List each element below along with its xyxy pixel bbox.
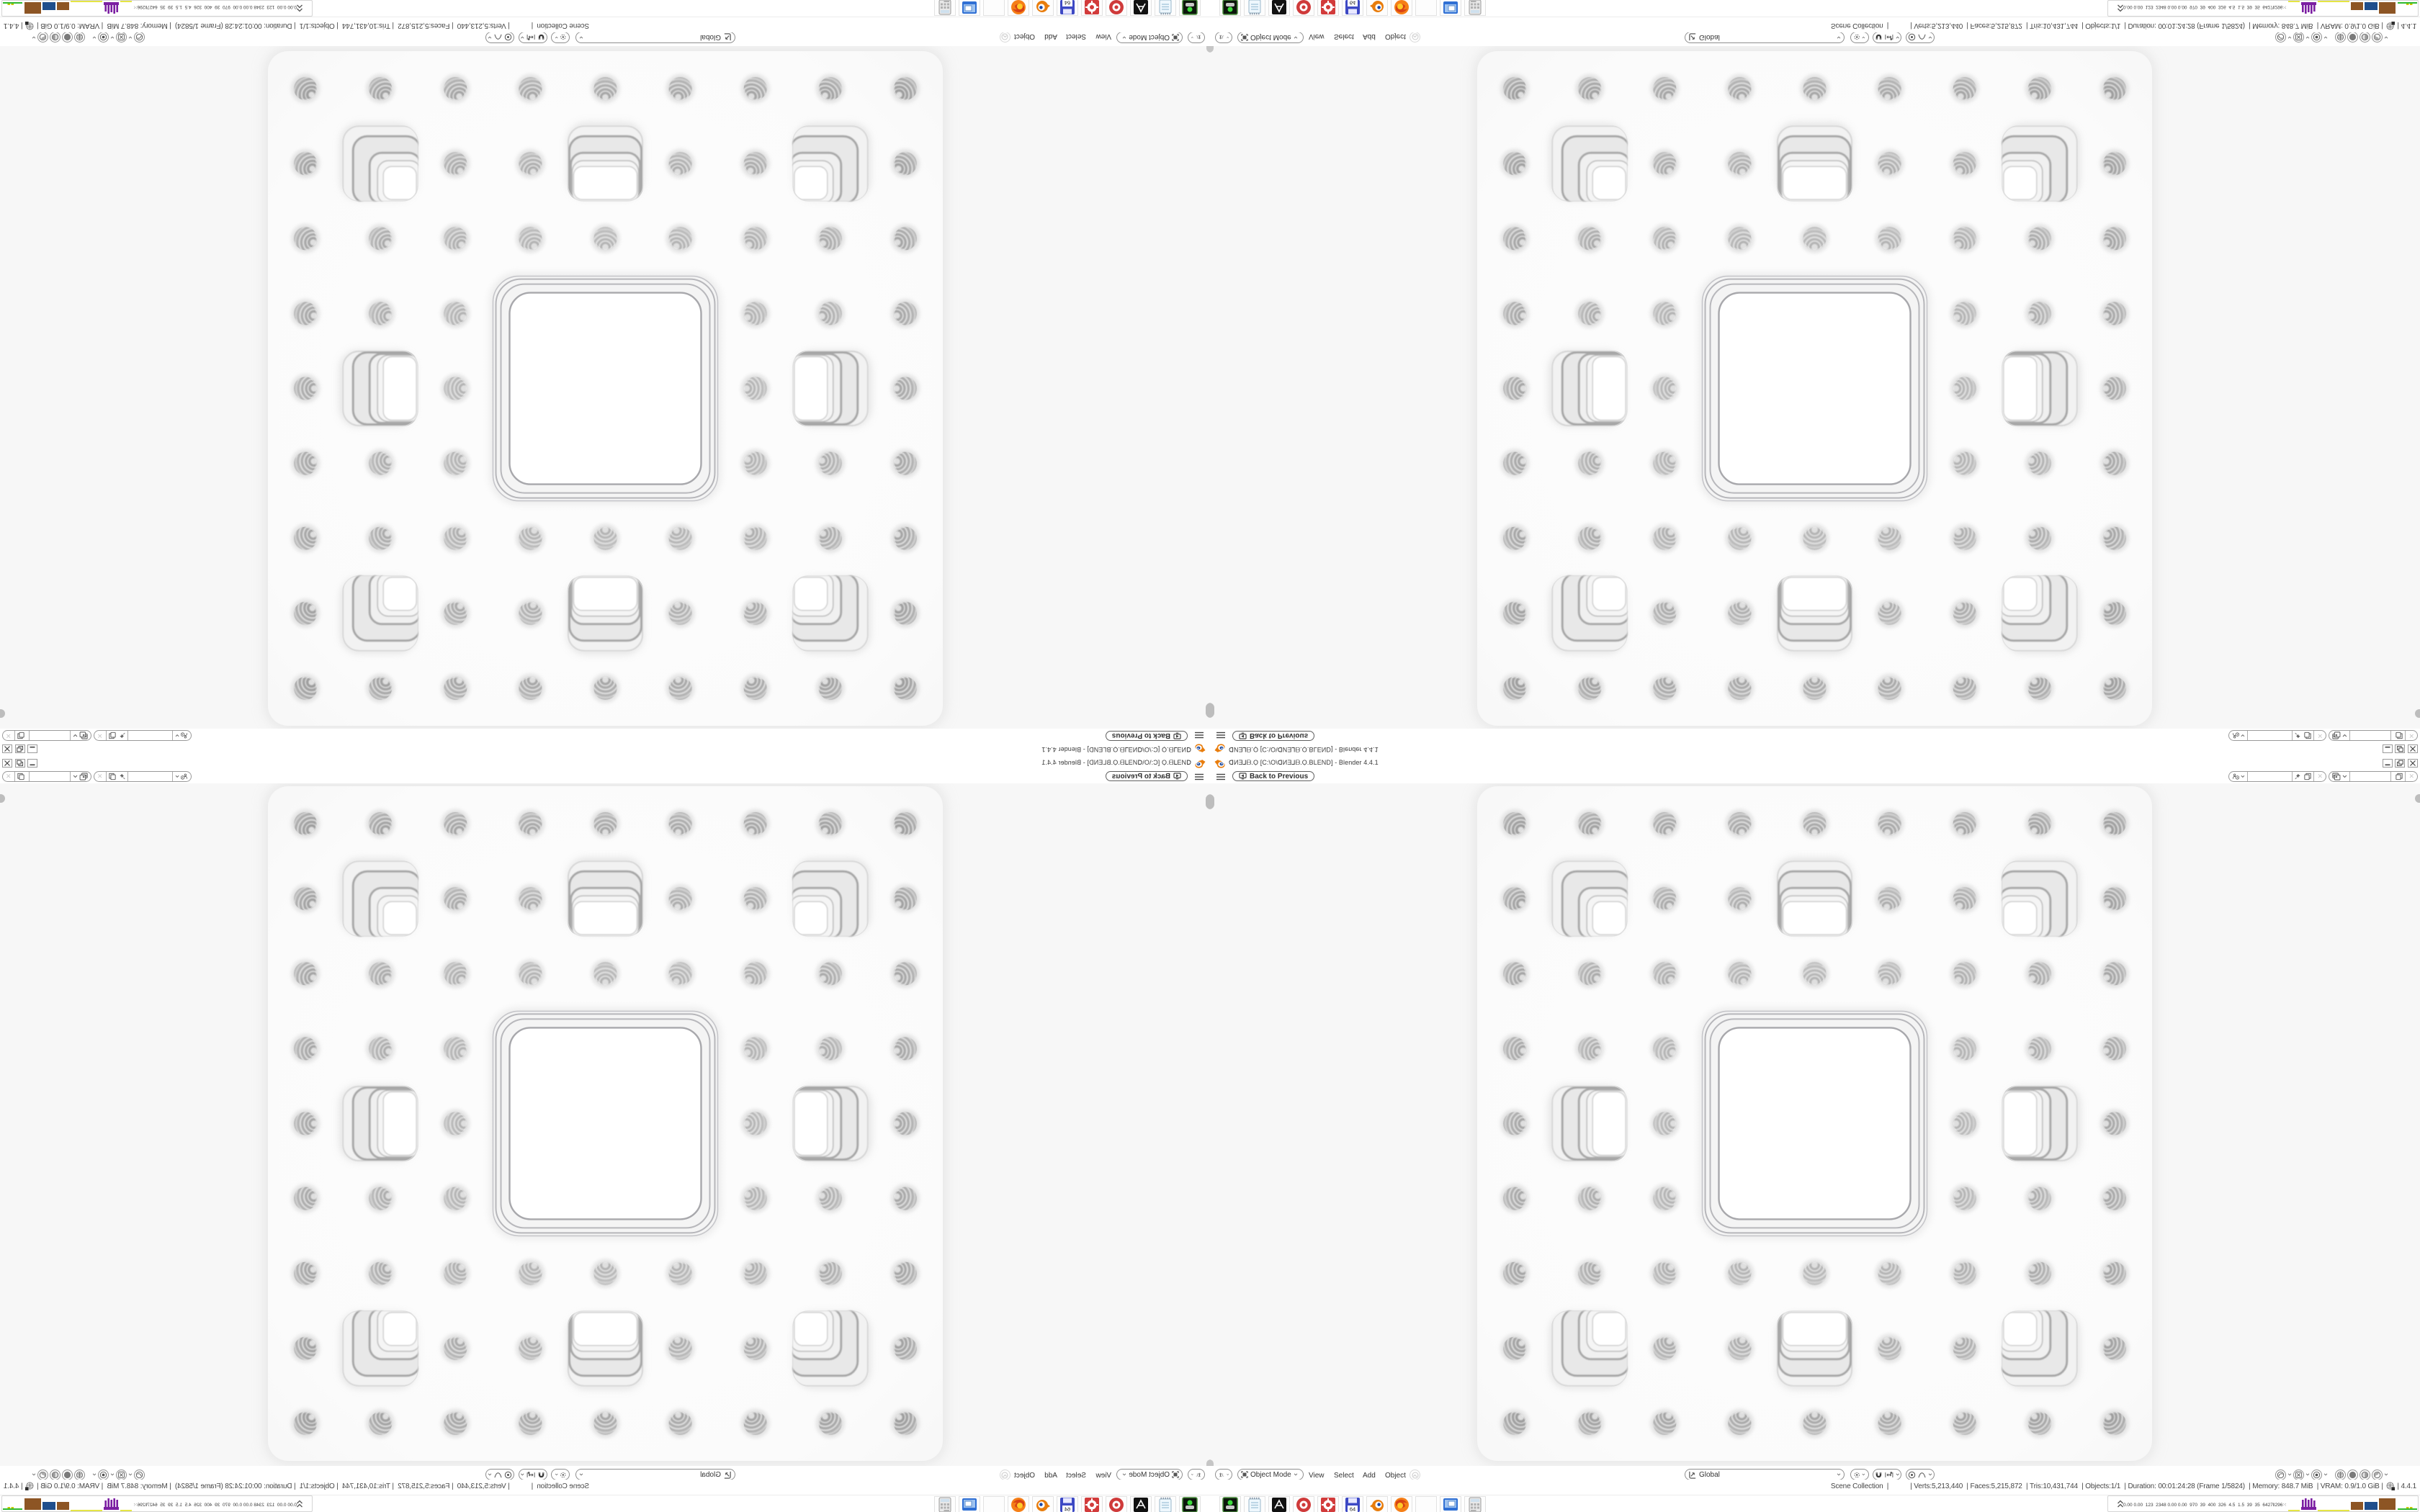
svg-text:64: 64 <box>1350 0 1355 6</box>
svg-text:64: 64 <box>1350 1506 1355 1512</box>
svg-text:64: 64 <box>1065 0 1070 6</box>
svg-text:64: 64 <box>1065 1506 1070 1512</box>
